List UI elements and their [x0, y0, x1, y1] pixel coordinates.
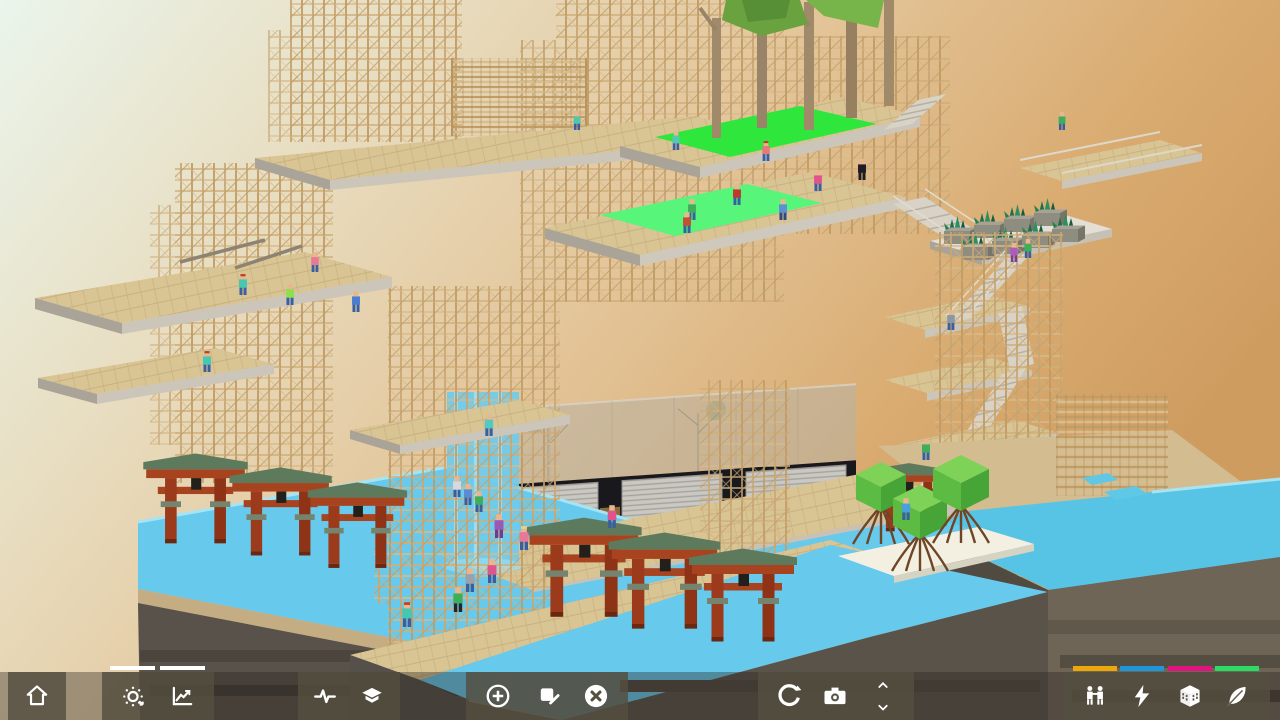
rotate-view-button[interactable]	[765, 672, 813, 720]
buildings-button[interactable]	[1166, 672, 1214, 720]
plus-circle-icon	[484, 682, 512, 710]
pulse-icon	[312, 683, 338, 709]
screenshot-button[interactable]	[811, 672, 859, 720]
pulse-button[interactable]	[301, 672, 349, 720]
sun-cycle-icon	[120, 683, 146, 709]
layers-icon	[359, 683, 385, 709]
delete-block-button[interactable]	[572, 672, 620, 720]
layers-button[interactable]	[348, 672, 396, 720]
lightning-icon	[1128, 682, 1156, 710]
rotate-icon	[775, 682, 803, 710]
plank-stack-block	[452, 58, 586, 136]
line-chart-icon	[169, 683, 195, 709]
x-circle-icon	[582, 682, 610, 710]
mangrove-tree	[933, 455, 989, 543]
tab-indicator-statistics	[160, 666, 205, 670]
population-meter	[1073, 666, 1117, 671]
population-button[interactable]	[1071, 672, 1119, 720]
annotate-button[interactable]	[526, 672, 574, 720]
environment-cycle-button[interactable]	[109, 672, 157, 720]
energy-meter	[1120, 666, 1164, 671]
add-block-button[interactable]	[474, 672, 522, 720]
game-viewport[interactable]	[0, 0, 1280, 720]
statistics-button[interactable]	[158, 672, 206, 720]
chevron-down-icon	[872, 699, 894, 717]
people-icon	[1081, 682, 1109, 710]
level-down-button[interactable]	[859, 696, 907, 720]
chevron-up-icon	[872, 675, 894, 693]
home-icon	[24, 683, 50, 709]
ecology-button[interactable]	[1213, 672, 1261, 720]
scene-canvas	[0, 0, 1280, 720]
marker-icon	[537, 683, 563, 709]
ecology-meter	[1215, 666, 1259, 671]
toolbar	[0, 664, 1280, 720]
camera-icon	[821, 682, 849, 710]
energy-button[interactable]	[1118, 672, 1166, 720]
tab-indicator-environment	[110, 666, 155, 670]
level-up-button[interactable]	[859, 672, 907, 696]
home-button[interactable]	[13, 672, 61, 720]
buildings-meter	[1168, 666, 1212, 671]
building-icon	[1176, 682, 1204, 710]
leaf-icon	[1223, 682, 1251, 710]
